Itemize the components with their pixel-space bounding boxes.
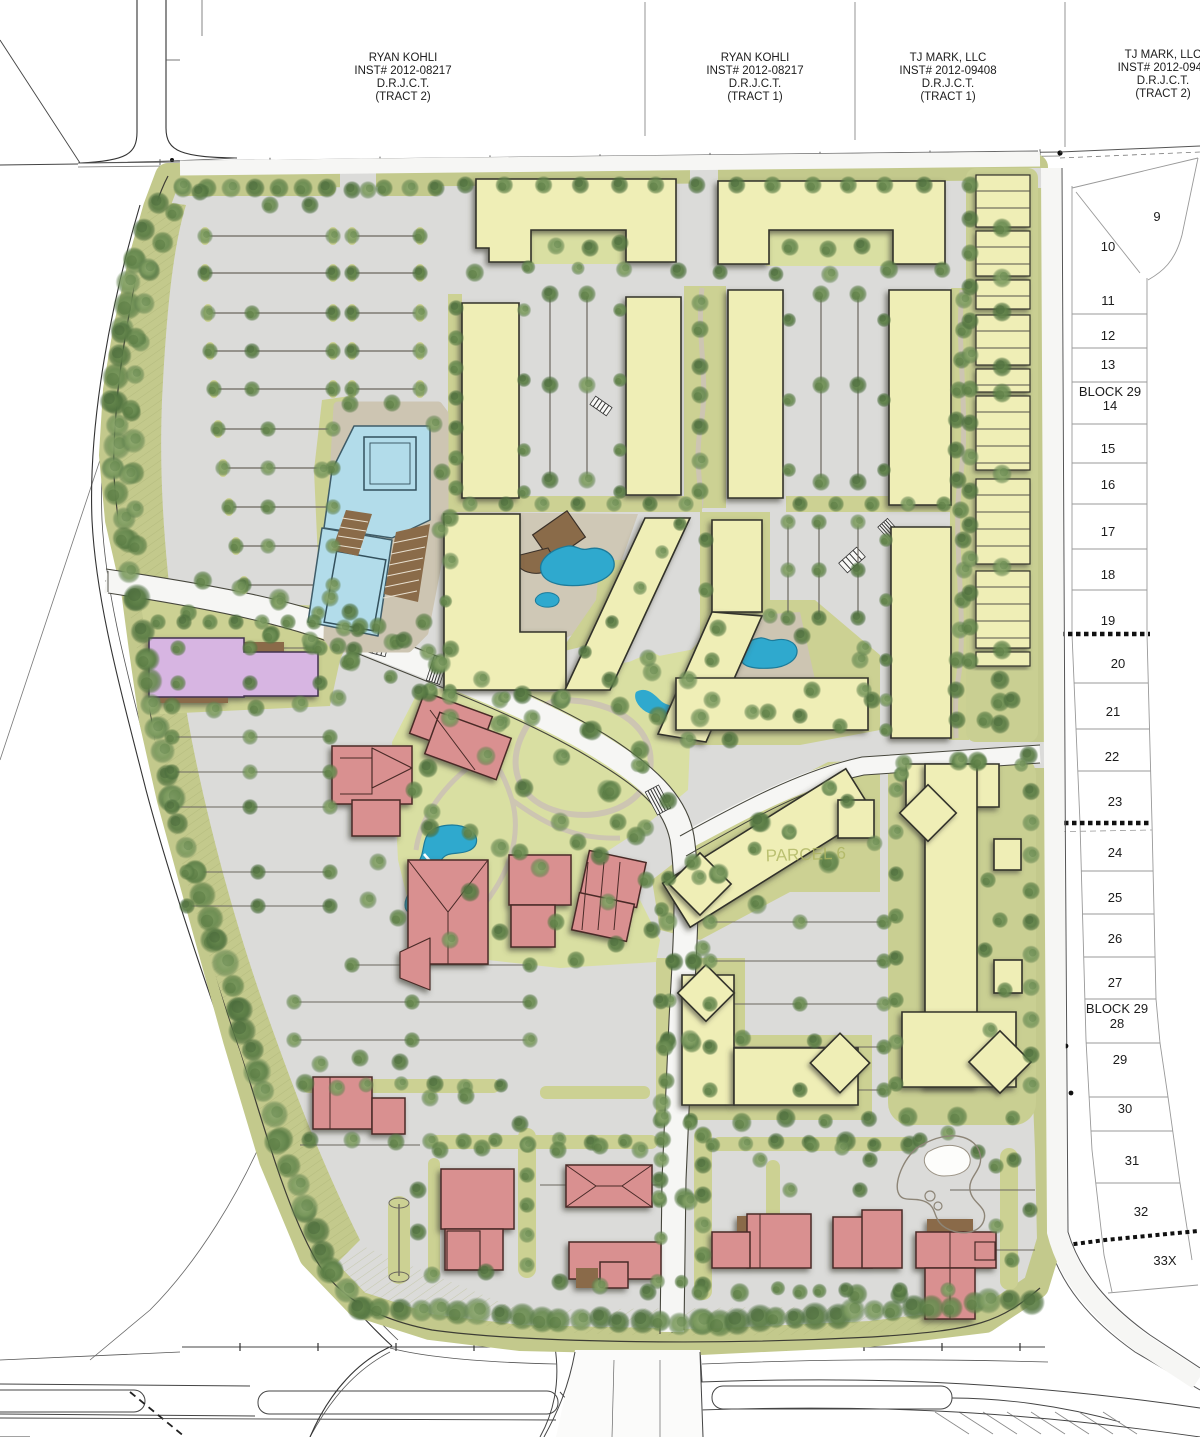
svg-text:TJ MARK, LLC: TJ MARK, LLC (1125, 49, 1200, 61)
svg-text:14: 14 (1103, 398, 1117, 413)
svg-text:18: 18 (1101, 567, 1115, 582)
svg-text:12: 12 (1101, 328, 1115, 343)
svg-text:20: 20 (1111, 656, 1125, 671)
svg-text:D.R.J.C.T.: D.R.J.C.T. (922, 78, 974, 90)
svg-text:17: 17 (1101, 524, 1115, 539)
svg-text:21: 21 (1106, 704, 1120, 719)
svg-text:30: 30 (1118, 1101, 1132, 1116)
svg-text:33X: 33X (1153, 1253, 1176, 1268)
svg-text:26: 26 (1108, 931, 1122, 946)
svg-text:INST# 2012-09408: INST# 2012-09408 (899, 65, 996, 77)
svg-text:32: 32 (1134, 1204, 1148, 1219)
svg-text:(TRACT 2): (TRACT 2) (1135, 88, 1191, 100)
svg-text:9: 9 (1153, 209, 1160, 224)
svg-text:D.R.J.C.T.: D.R.J.C.T. (1137, 75, 1189, 87)
svg-text:INST# 2012-0946: INST# 2012-0946 (1118, 62, 1200, 74)
svg-text:27: 27 (1108, 975, 1122, 990)
svg-text:(TRACT 1): (TRACT 1) (727, 91, 783, 103)
svg-text:D.R.J.C.T.: D.R.J.C.T. (729, 78, 781, 90)
svg-text:RYAN KOHLI: RYAN KOHLI (369, 52, 438, 64)
svg-text:16: 16 (1101, 477, 1115, 492)
svg-text:BLOCK 29: BLOCK 29 (1086, 1001, 1148, 1016)
svg-text:31: 31 (1125, 1153, 1139, 1168)
svg-text:D.R.J.C.T.: D.R.J.C.T. (377, 78, 429, 90)
svg-text:BLOCK 29: BLOCK 29 (1079, 384, 1141, 399)
svg-text:10: 10 (1101, 239, 1115, 254)
svg-text:28: 28 (1110, 1016, 1124, 1031)
svg-text:PARCEL 6: PARCEL 6 (765, 844, 846, 866)
svg-text:22: 22 (1105, 749, 1119, 764)
svg-text:15: 15 (1101, 441, 1115, 456)
svg-text:19: 19 (1101, 613, 1115, 628)
svg-text:TJ MARK, LLC: TJ MARK, LLC (910, 52, 987, 64)
svg-text:23: 23 (1108, 794, 1122, 809)
svg-text:29: 29 (1113, 1052, 1127, 1067)
svg-text:25: 25 (1108, 890, 1122, 905)
svg-text:(TRACT 2): (TRACT 2) (375, 91, 431, 103)
svg-text:(TRACT 1): (TRACT 1) (920, 91, 976, 103)
svg-text:13: 13 (1101, 357, 1115, 372)
svg-text:INST# 2012-08217: INST# 2012-08217 (354, 65, 451, 77)
svg-text:24: 24 (1108, 845, 1122, 860)
svg-text:11: 11 (1101, 293, 1115, 308)
svg-text:INST# 2012-08217: INST# 2012-08217 (706, 65, 803, 77)
svg-text:RYAN KOHLI: RYAN KOHLI (721, 52, 790, 64)
